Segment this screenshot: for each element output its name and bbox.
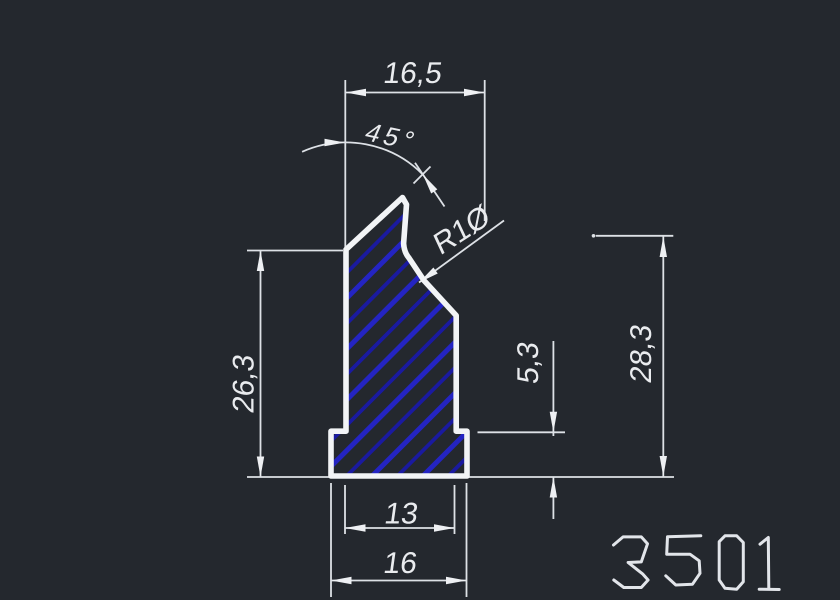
- svg-text:13: 13: [382, 498, 420, 531]
- svg-text:5,3: 5,3: [512, 340, 545, 386]
- svg-text:28,3: 28,3: [625, 322, 658, 385]
- svg-text:16: 16: [381, 547, 419, 580]
- svg-text:26,3: 26,3: [228, 352, 261, 415]
- svg-text:16,5: 16,5: [381, 57, 444, 90]
